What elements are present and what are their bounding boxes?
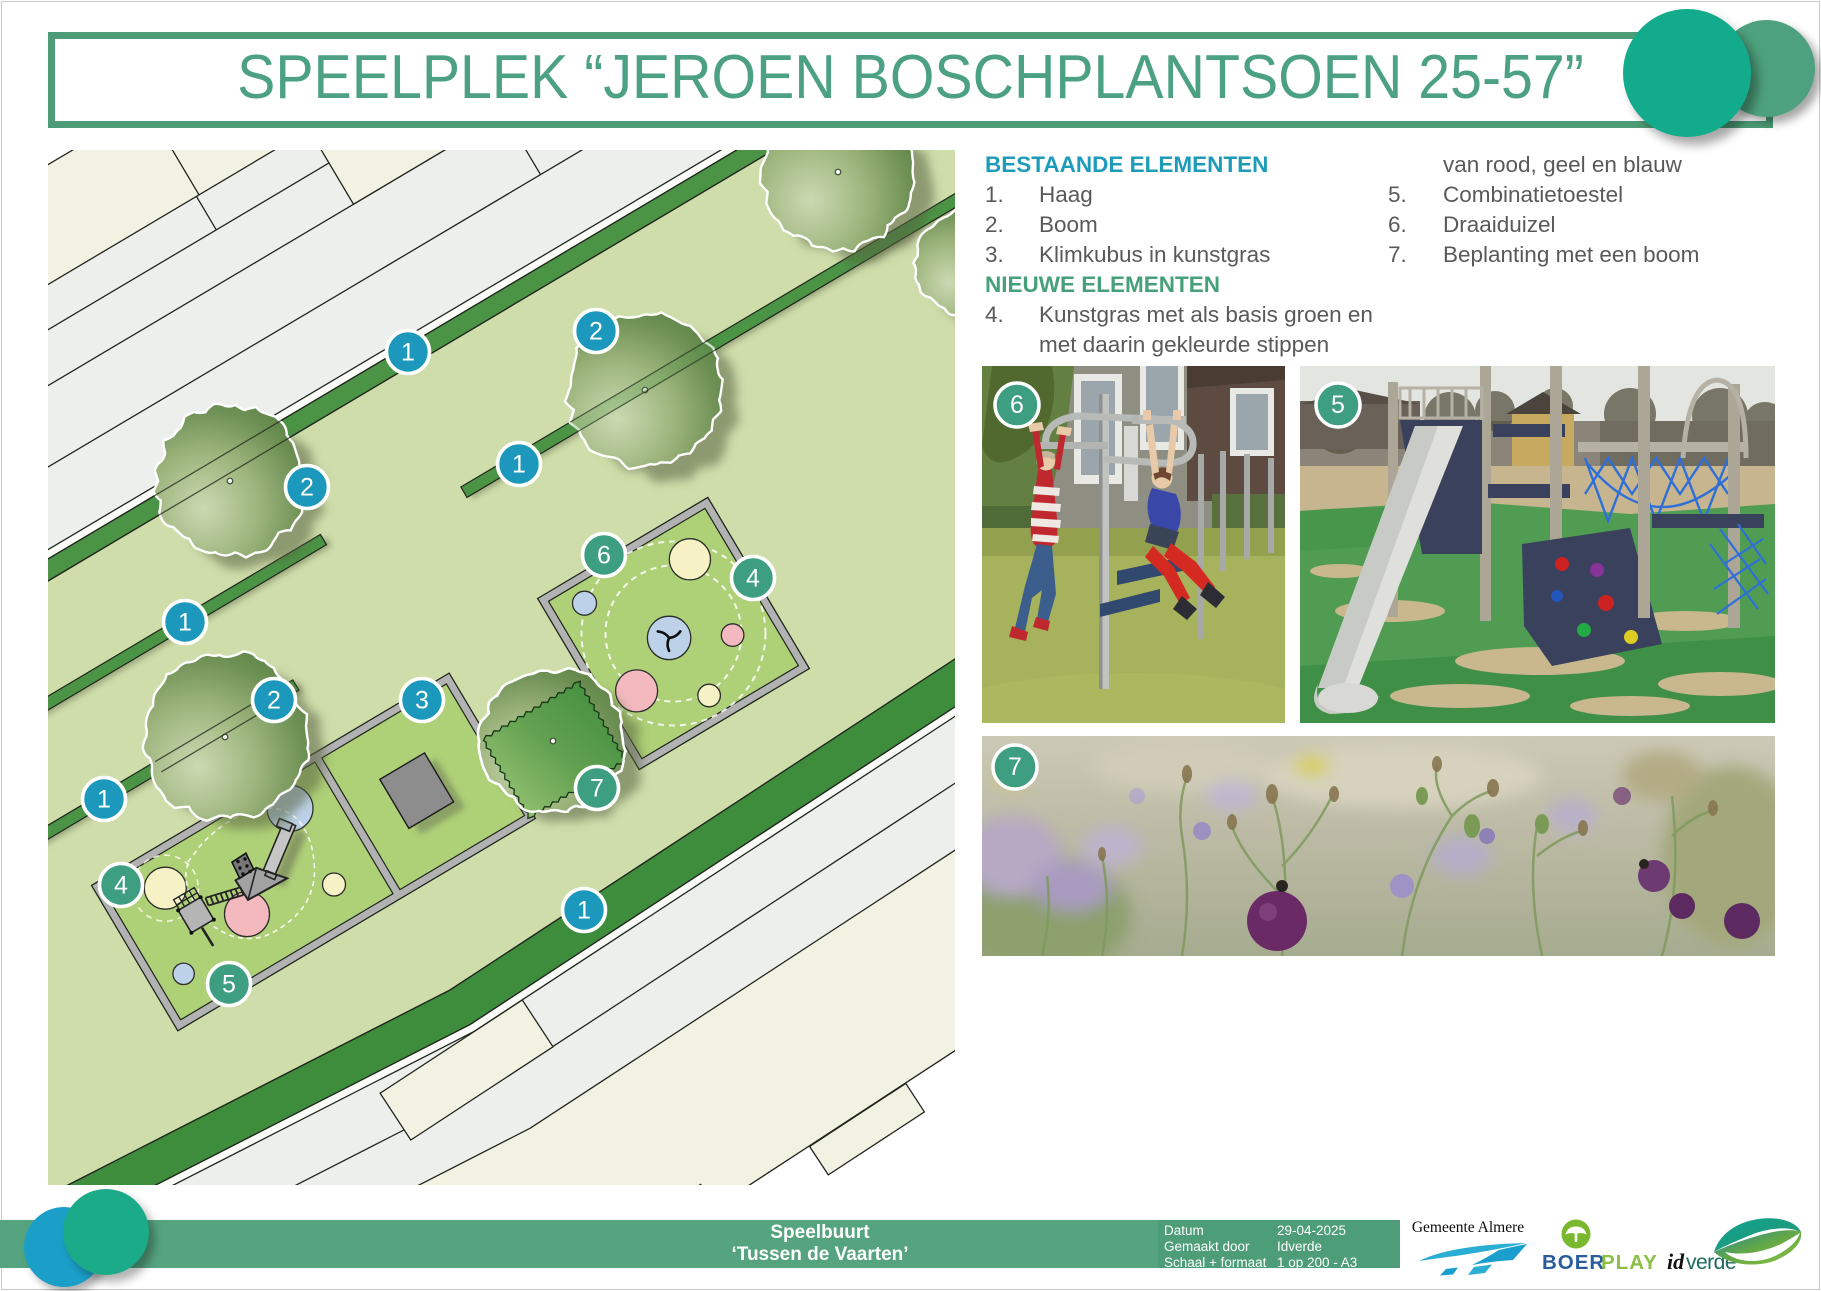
svg-text:4: 4 [746, 565, 760, 593]
svg-text:1: 1 [178, 609, 192, 637]
svg-text:PLAY: PLAY [1601, 1251, 1658, 1274]
svg-text:7: 7 [1008, 753, 1022, 781]
svg-text:7: 7 [590, 775, 604, 803]
svg-text:BOER: BOER [1542, 1251, 1605, 1274]
svg-text:5: 5 [222, 971, 236, 999]
svg-text:1: 1 [512, 451, 526, 479]
svg-text:6: 6 [597, 542, 611, 570]
svg-text:5: 5 [1331, 391, 1345, 419]
svg-text:2: 2 [267, 687, 281, 715]
svg-text:1: 1 [401, 339, 415, 367]
svg-text:6: 6 [1010, 391, 1024, 419]
svg-text:3: 3 [415, 687, 429, 715]
svg-text:2: 2 [300, 474, 314, 502]
svg-text:Gemeente Almere: Gemeente Almere [1412, 1219, 1524, 1236]
svg-text:4: 4 [114, 872, 128, 900]
svg-text:1: 1 [577, 897, 591, 925]
svg-text:2: 2 [589, 318, 603, 346]
svg-text:1: 1 [97, 786, 111, 814]
svg-text:id: id [1667, 1249, 1685, 1274]
